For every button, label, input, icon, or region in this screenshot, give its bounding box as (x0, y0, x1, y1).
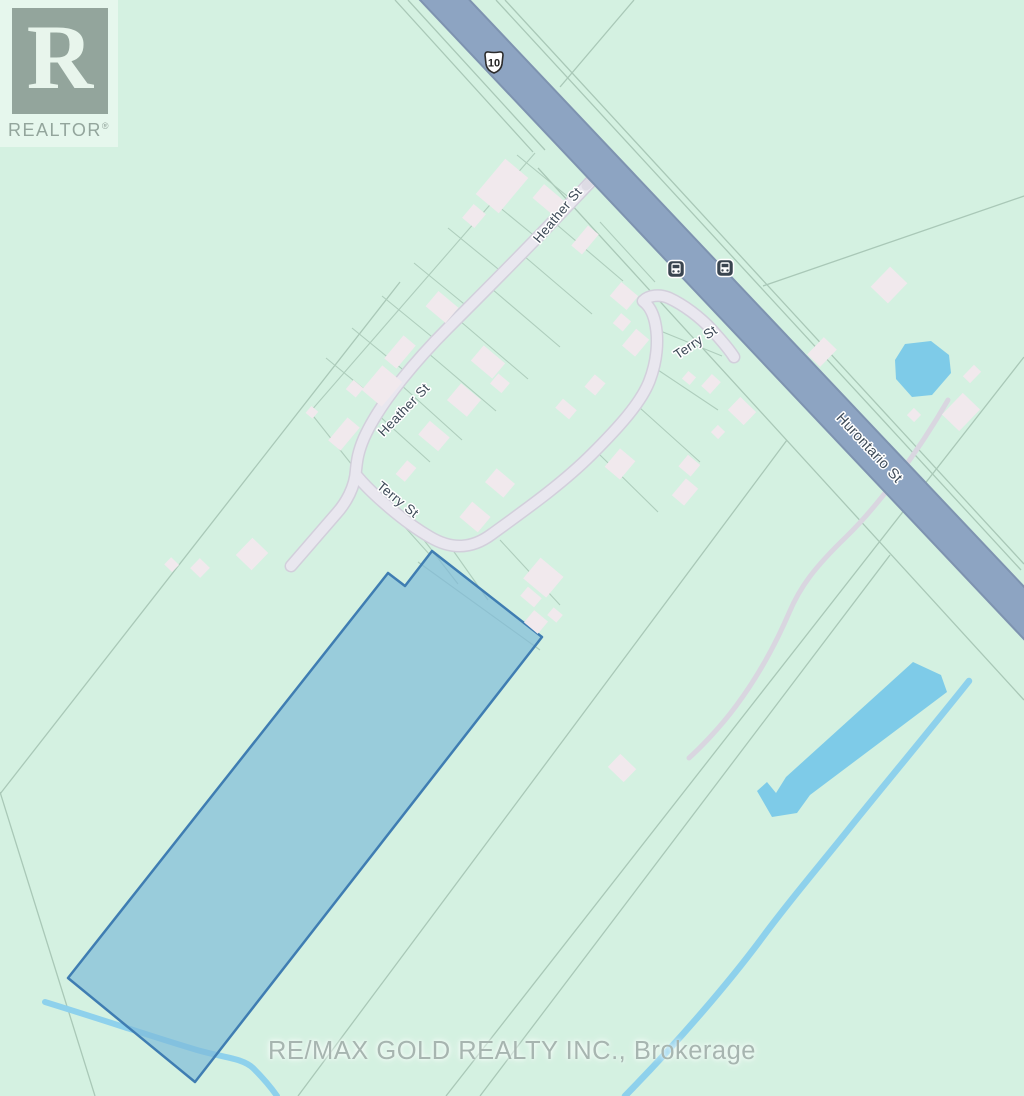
bus-stop-icon (717, 260, 734, 277)
bus-icon-wheel (726, 269, 728, 271)
realtor-brand-text: REALTOR (8, 120, 102, 140)
listing-map: Heather St Heather St Terry St Terry St … (0, 0, 1024, 1096)
map-canvas[interactable]: Heather St Heather St Terry St Terry St … (0, 0, 1024, 1096)
bus-icon-wheel (677, 270, 679, 272)
highway-shield-number: 10 (488, 58, 500, 70)
bus-stop-icon (668, 261, 685, 278)
realtor-monogram: R (27, 11, 93, 103)
registered-trademark-symbol: ® (102, 121, 110, 131)
brokerage-watermark: RE/MAX GOLD REALTY INC., Brokerage (0, 1037, 1024, 1066)
bus-icon-window (673, 265, 680, 268)
realtor-wordmark: REALTOR® (0, 120, 118, 141)
bus-icon-wheel (672, 270, 674, 272)
bus-icon-wheel (721, 269, 723, 271)
bus-icon-window (722, 264, 729, 267)
realtor-logo: R REALTOR® (0, 0, 118, 147)
realtor-r-logo-mark: R (12, 8, 108, 114)
